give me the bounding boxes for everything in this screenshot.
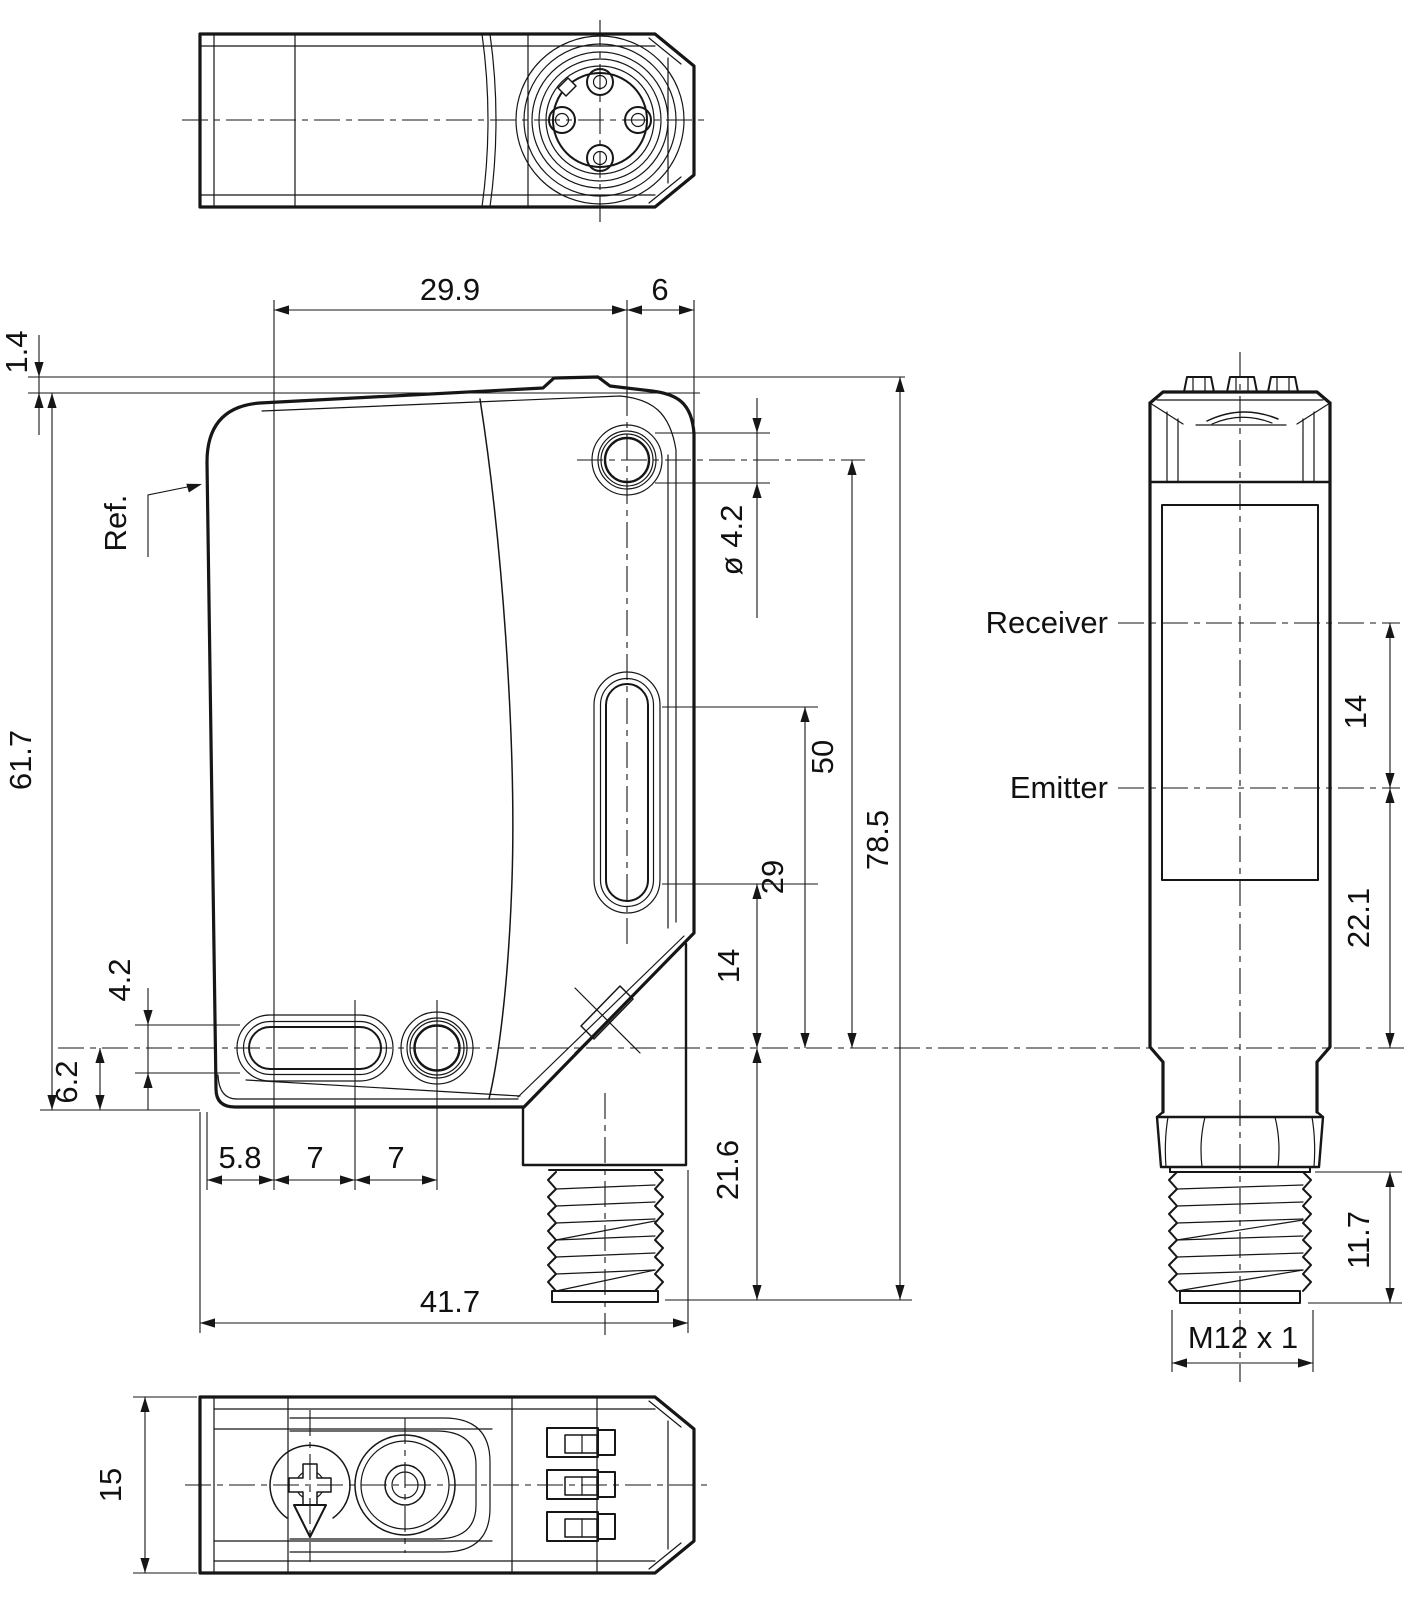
top-view xyxy=(182,20,706,222)
side-view xyxy=(207,377,694,1302)
emitter-label: Emitter xyxy=(1010,770,1108,805)
dim-6-2: 6.2 xyxy=(49,1060,84,1103)
receiver-label: Receiver xyxy=(986,605,1108,640)
dimension-arrows xyxy=(34,305,1394,1573)
dim-dia-4-2: ø 4.2 xyxy=(714,505,749,576)
sensor-dimensional-drawing: 29.9 6 1.4 61.7 Ref. ø 4.2 50 29 14 78.5… xyxy=(0,0,1417,1606)
dim-29: 29 xyxy=(755,860,790,894)
indicator-lens xyxy=(1207,412,1278,421)
dim-15: 15 xyxy=(93,1468,128,1502)
dim-1-4: 1.4 xyxy=(0,330,34,373)
dim-41-7: 41.7 xyxy=(420,1284,480,1319)
dim-14-front: 14 xyxy=(1338,695,1373,729)
dim-4-2-slot: 4.2 xyxy=(102,958,137,1001)
dim-50: 50 xyxy=(805,740,840,774)
drawing-canvas: 29.9 6 1.4 61.7 Ref. ø 4.2 50 29 14 78.5… xyxy=(0,0,1417,1606)
dim-22-1: 22.1 xyxy=(1341,888,1376,948)
ref-label: Ref. xyxy=(98,495,133,552)
dim-11-7: 11.7 xyxy=(1341,1211,1376,1269)
extension-lines xyxy=(28,300,1402,1573)
dim-61-7: 61.7 xyxy=(3,730,38,790)
front-view xyxy=(1150,352,1330,1382)
top-tabs xyxy=(1184,377,1298,392)
dim-14-side: 14 xyxy=(711,949,746,983)
dim-6: 6 xyxy=(651,272,668,307)
dim-7b: 7 xyxy=(387,1140,404,1175)
dim-78-5: 78.5 xyxy=(860,810,895,870)
dimension-lines xyxy=(39,310,1390,1573)
dim-5-8: 5.8 xyxy=(218,1140,261,1175)
bottom-view xyxy=(185,1397,710,1573)
ref-leader xyxy=(148,485,197,557)
optical-axis-mark xyxy=(581,986,633,1039)
dim-m12x1: M12 x 1 xyxy=(1188,1320,1298,1355)
dim-21-6: 21.6 xyxy=(710,1140,745,1200)
dim-7a: 7 xyxy=(306,1140,323,1175)
dim-29-9: 29.9 xyxy=(420,272,480,307)
